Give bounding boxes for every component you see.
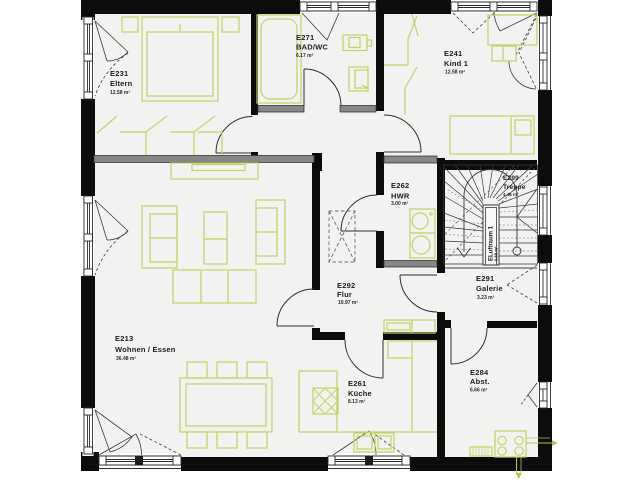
svg-text:E241: E241 (444, 49, 462, 58)
svg-text:6.17 m²: 6.17 m² (296, 53, 314, 59)
svg-text:BAD/WC: BAD/WC (296, 43, 328, 52)
svg-text:3.23 m²: 3.23 m² (477, 295, 495, 301)
svg-text:Wohnen / Essen: Wohnen / Essen (115, 345, 176, 354)
svg-text:E284: E284 (470, 368, 489, 377)
svg-text:3.00 m²: 3.00 m² (391, 201, 409, 207)
svg-text:10.97 m²: 10.97 m² (338, 300, 358, 306)
svg-text:12.58 m²: 12.58 m² (110, 90, 130, 96)
svg-text:E292: E292 (337, 281, 355, 290)
svg-text:Flur: Flur (337, 290, 352, 299)
svg-text:8.13 m²: 8.13 m² (348, 399, 366, 405)
svg-text:E213: E213 (115, 334, 133, 343)
svg-text:E291: E291 (476, 274, 494, 283)
svg-text:6.66 m²: 6.66 m² (470, 388, 488, 394)
svg-text:12.58 m²: 12.58 m² (445, 70, 465, 76)
svg-text:Küche: Küche (348, 389, 372, 398)
svg-text:E231: E231 (110, 69, 128, 78)
svg-text:HWR: HWR (391, 192, 410, 201)
svg-text:Treppe: Treppe (503, 184, 526, 191)
svg-text:36.48 m²: 36.48 m² (116, 356, 136, 362)
svg-text:E271: E271 (296, 33, 314, 42)
svg-text:0.69 m²: 0.69 m² (494, 246, 499, 261)
svg-text:Kind 1: Kind 1 (444, 59, 468, 68)
svg-text:E262: E262 (391, 181, 409, 190)
svg-text:Eltern: Eltern (110, 79, 133, 88)
svg-text:E299: E299 (503, 175, 519, 182)
svg-text:Abst.: Abst. (470, 377, 490, 386)
svg-text:E261: E261 (348, 379, 366, 388)
svg-text:Galerie: Galerie (476, 284, 503, 293)
svg-text:4.46 m²: 4.46 m² (503, 192, 519, 197)
